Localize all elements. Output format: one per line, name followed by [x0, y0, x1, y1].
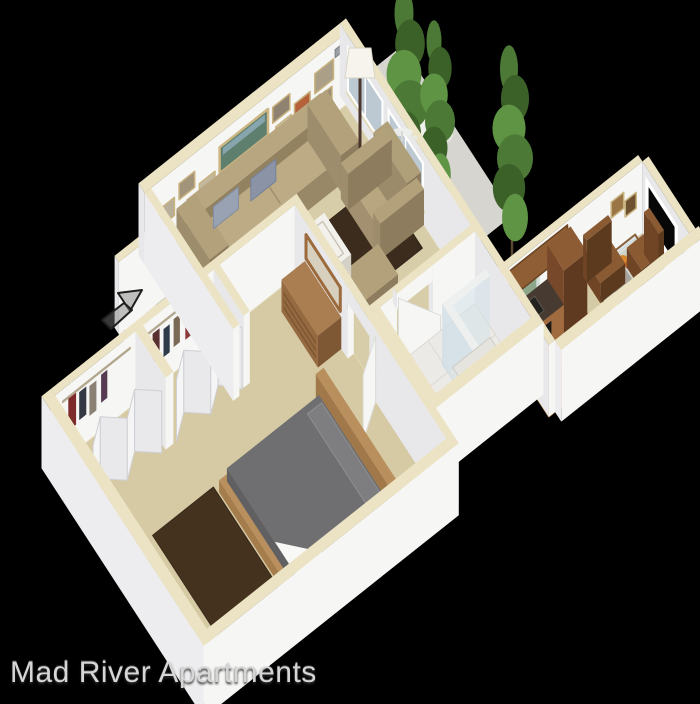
- floor-lamp-shade: [345, 48, 375, 78]
- closet-stub-wall: [166, 372, 174, 450]
- hanging-clothes: [174, 314, 180, 347]
- closet-stub-wall: [244, 311, 250, 388]
- living-window-mullion: [365, 75, 367, 116]
- dining-chair-back: [583, 235, 587, 283]
- patio-chair-through-glass: [408, 136, 418, 141]
- hanging-clothes: [79, 387, 86, 421]
- hanging-clothes: [164, 324, 170, 357]
- hanging-clothes: [89, 380, 96, 416]
- hanging-clothes: [101, 370, 107, 403]
- floorplan-3d-render: [0, 0, 700, 704]
- closet-bifold-door: [135, 389, 162, 453]
- tree: [502, 194, 528, 242]
- dining-south-wall: [555, 340, 561, 422]
- window-wall: [549, 340, 555, 417]
- closet-bifold-door: [100, 417, 127, 481]
- living-west-wall: [233, 324, 239, 401]
- gallery-wall: [139, 183, 145, 265]
- caption-text: Mad River Apartments: [10, 656, 317, 690]
- floorplan-image: Mad River Apartments: [0, 0, 700, 704]
